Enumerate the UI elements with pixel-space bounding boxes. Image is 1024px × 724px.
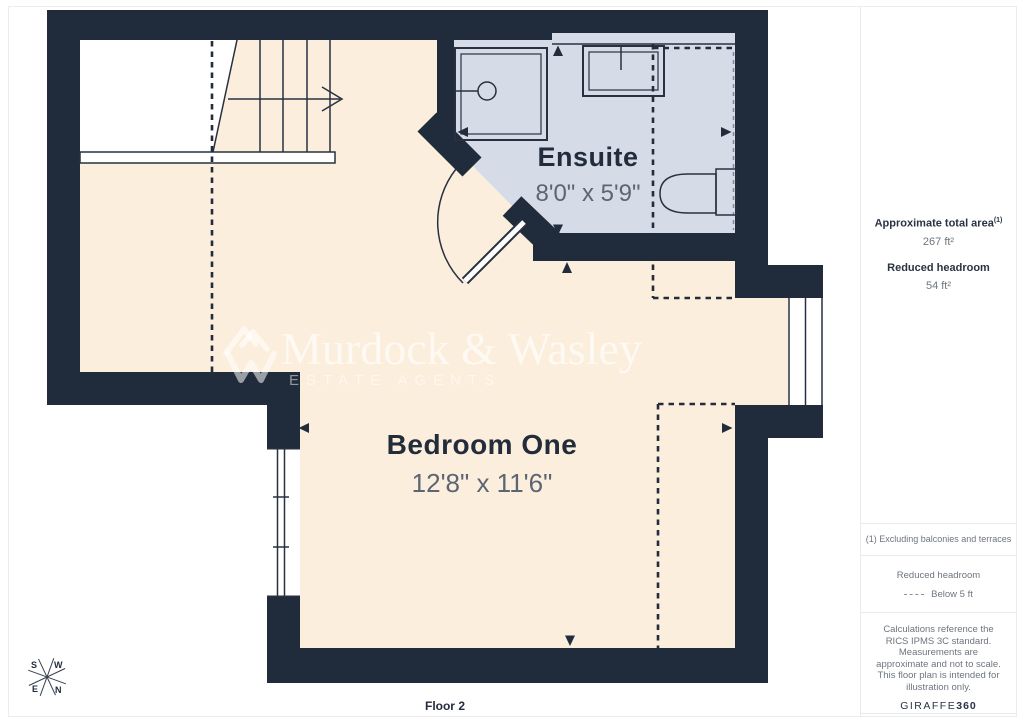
compass-west-label: W <box>54 660 63 670</box>
area-summary: Approximate total area(1) 267 ft² Reduce… <box>861 217 1016 292</box>
info-sidebar: Approximate total area(1) 267 ft² Reduce… <box>860 7 1016 716</box>
footnote-cell: (1) Excluding balconies and terraces <box>861 523 1016 556</box>
total-area-footnote-marker: (1) <box>994 217 1003 224</box>
floor-label: Floor 2 <box>395 699 495 713</box>
disclaimer-cell: Calculations reference the RICS IPMS 3C … <box>861 613 1016 714</box>
giraffe360-logo: GIRAFFE360 <box>874 701 1003 713</box>
compass-south-label: S <box>31 660 37 670</box>
total-area-value: 267 ft² <box>861 236 1016 248</box>
legend-title: Reduced headroom <box>861 570 1016 581</box>
room-label-bedroom-one: Bedroom One <box>342 429 622 461</box>
footnote-text: (1) Excluding balconies and terraces <box>866 534 1012 544</box>
compass-east-label: E <box>32 684 38 694</box>
disclaimer-text: Calculations reference the RICS IPMS 3C … <box>874 624 1003 693</box>
stairwell-void <box>80 40 237 152</box>
legend-cell: Reduced headroom Below 5 ft <box>861 556 1016 613</box>
dashed-line-legend-icon <box>904 594 924 595</box>
reduced-headroom-label: Reduced headroom <box>861 262 1016 274</box>
reduced-headroom-value: 54 ft² <box>861 280 1016 292</box>
watermark-tagline: ESTATE AGENTS <box>289 372 589 389</box>
window-left <box>267 448 300 597</box>
legend-value: Below 5 ft <box>931 589 973 600</box>
watermark-brand: Murdock & Wasley <box>281 322 681 375</box>
room-dimensions-bedroom-one: 12'8" x 11'6" <box>352 468 612 499</box>
room-label-ensuite: Ensuite <box>488 142 688 173</box>
total-area-label: Approximate total area(1) <box>861 217 1016 230</box>
window-dormer <box>788 298 823 405</box>
room-dimensions-ensuite: 8'0" x 5'9" <box>478 180 698 208</box>
stair-landing <box>80 152 335 163</box>
compass-north-label: N <box>55 685 62 695</box>
floor-plan-page: Murdock & Wasley ESTATE AGENTS Ensuite 8… <box>0 0 1024 724</box>
